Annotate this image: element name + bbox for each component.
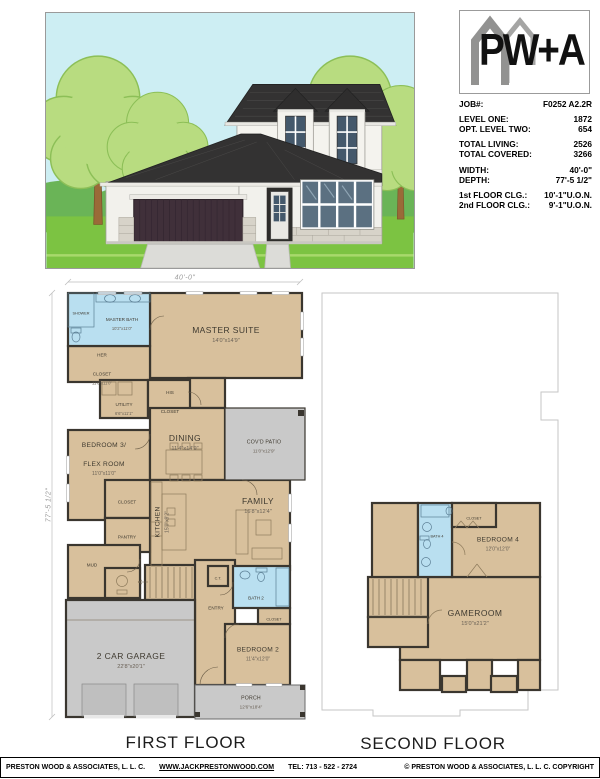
dormer-window-bay (491, 676, 517, 692)
website-link[interactable]: WWW.JACKPRESTONWOOD.COM (159, 764, 274, 771)
second-floor-svg: .wall2{stroke:#3a362f;stroke-width:2.2} … (315, 272, 570, 732)
second-floor-plan: .wall2{stroke:#3a362f;stroke-width:2.2} … (315, 272, 570, 732)
spec-label: WIDTH: (459, 165, 489, 175)
stair-landing-shape (368, 617, 428, 647)
phone-number: TEL: 713 - 522 - 2724 (288, 764, 357, 771)
footer-left: PRESTON WOOD & ASSOCIATES, L. L. C. WWW.… (6, 764, 357, 771)
room-covd-patio-shape (225, 408, 305, 480)
room-bedroom2-shape (225, 624, 290, 685)
dim-depth-label: 77'-5 1/2" (46, 488, 53, 523)
spec-label: LEVEL ONE: (459, 114, 509, 124)
spec-label: JOB#: (459, 99, 483, 109)
spec-row: OPT. LEVEL TWO: 654 (459, 124, 592, 134)
spec-value: 3266 (574, 149, 592, 159)
first-floor-title: FIRST FLOOR (126, 733, 247, 753)
spec-label: TOTAL COVERED: (459, 149, 532, 159)
room-her-closet-shape (68, 346, 150, 382)
spec-label: DEPTH: (459, 175, 490, 185)
spec-value: 9'-1"U.O.N. (549, 200, 592, 210)
spec-row: 1st FLOOR CLG.: 10'-1"U.O.N. (459, 190, 592, 200)
copyright-text: © PRESTON WOOD & ASSOCIATES, L. L. C. CO… (404, 764, 594, 771)
spec-value: 1872 (574, 114, 592, 124)
title-block-footer: PRESTON WOOD & ASSOCIATES, L. L. C. WWW.… (0, 757, 600, 778)
gameroom-leg (518, 660, 540, 690)
spec-group-size: WIDTH: 40'-0" DEPTH: 77'-5 1/2" (459, 165, 592, 185)
room-master-bath-shape (68, 293, 150, 346)
stairs2-shape (368, 577, 428, 617)
spec-value: 654 (578, 124, 592, 134)
dim-text: 40'-0" (175, 275, 196, 282)
dormer-window-bay (442, 676, 466, 692)
spec-value: 40'-0" (569, 165, 592, 175)
spec-job: JOB#: F0252 A2.2R (459, 99, 592, 109)
spec-label: TOTAL LIVING: (459, 139, 518, 149)
spec-value: F0252 A2.2R (543, 99, 592, 109)
room-utility-shape (100, 380, 148, 418)
spec-value: 10'-1"U.O.N. (544, 190, 592, 200)
room-kitchen-family-shape (150, 480, 290, 570)
spec-row: WIDTH: 40'-0" (459, 165, 592, 175)
foundation (106, 241, 382, 244)
room-dining-shape (150, 408, 225, 480)
plan-sheet: PW+A JOB#: F0252 A2.2R LEVEL ONE: 1872 O… (0, 0, 600, 779)
spec-group-ceilings: 1st FLOOR CLG.: 10'-1"U.O.N. 2nd FLOOR C… (459, 190, 592, 210)
specs-block: JOB#: F0252 A2.2R LEVEL ONE: 1872 OPT. L… (459, 99, 592, 210)
spec-row: DEPTH: 77'-5 1/2" (459, 175, 592, 185)
second-floor-title: SECOND FLOOR (360, 734, 506, 754)
first-floor-plan: .wall{stroke:#3a362f;stroke-width:2.2} .… (40, 272, 318, 732)
rooms2 (368, 503, 540, 692)
spec-label: OPT. LEVEL TWO: (459, 124, 531, 134)
house-elevation-rendering (45, 12, 415, 269)
spec-label: 2nd FLOOR CLG.: (459, 200, 530, 210)
spec-row: TOTAL COVERED: 3266 (459, 149, 592, 159)
spec-group-totals: TOTAL LIVING: 2526 TOTAL COVERED: 3266 (459, 139, 592, 159)
logo-box: PW+A (459, 10, 590, 94)
room-master-suite-shape (150, 293, 302, 378)
room-ct-shape (208, 566, 228, 586)
gameroom-leg (400, 660, 440, 690)
spec-row: 2nd FLOOR CLG.: 9'-1"U.O.N. (459, 200, 592, 210)
spec-row: LEVEL ONE: 1872 (459, 114, 592, 124)
dim-width-label: 40'-0" (175, 275, 196, 282)
rooms (66, 293, 305, 719)
front-window (300, 180, 373, 230)
elevation-svg (46, 13, 414, 268)
first-floor-svg: .wall{stroke:#3a362f;stroke-width:2.2} .… (40, 272, 318, 732)
room-porch-shape (195, 685, 305, 719)
room-closet2-shape (258, 608, 290, 624)
spec-group-areas: LEVEL ONE: 1872 OPT. LEVEL TWO: 654 (459, 114, 592, 134)
room-closet3-shape (105, 480, 150, 518)
spec-value: 77'-5 1/2" (556, 175, 592, 185)
company-name: PRESTON WOOD & ASSOCIATES, L. L. C. (6, 764, 145, 771)
upper-left-room-shape (372, 503, 418, 577)
room-powder-shape (105, 568, 140, 598)
spec-value: 2526 (574, 139, 592, 149)
entry-door (267, 188, 293, 244)
spec-label: 1st FLOOR CLG.: (459, 190, 527, 200)
driveway (141, 244, 291, 268)
dim-text: 77'-5 1/2" (46, 488, 53, 523)
garage-door (134, 200, 243, 244)
spec-row: TOTAL LIVING: 2526 (459, 139, 592, 149)
gameroom-leg (467, 660, 492, 690)
logo-text: PW+A (479, 29, 584, 74)
